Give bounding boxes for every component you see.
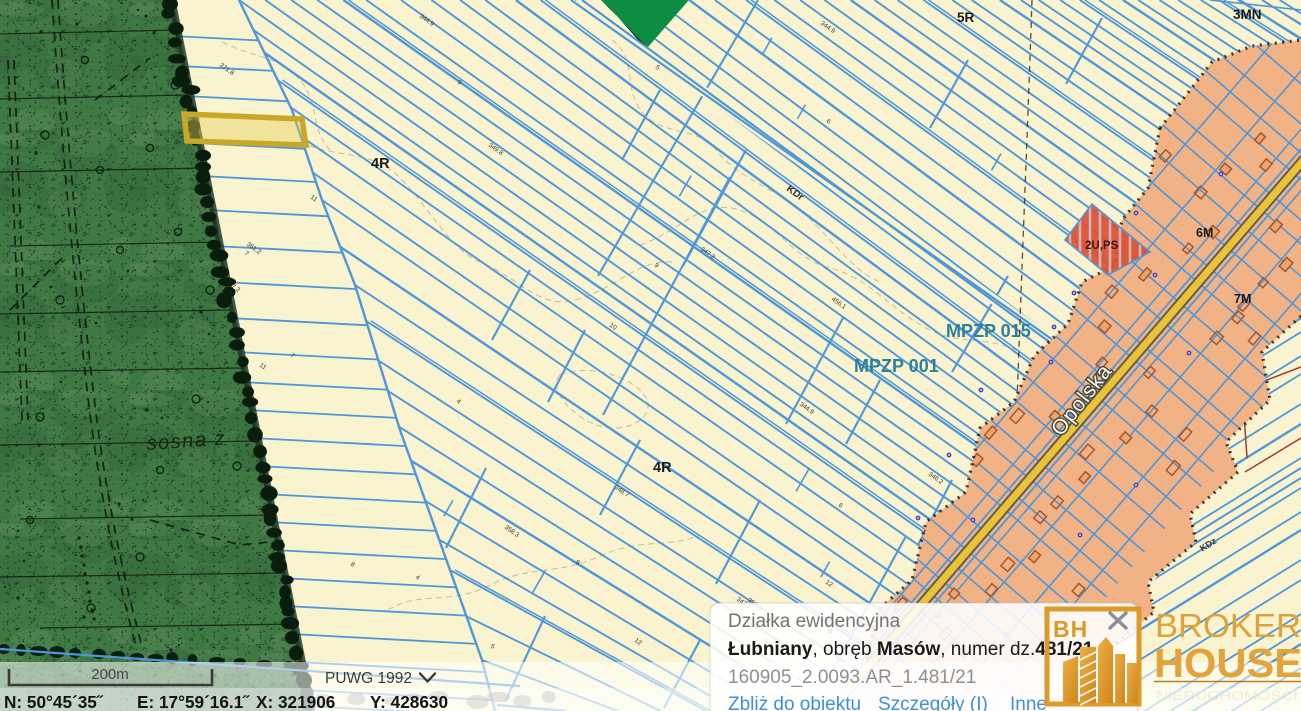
svg-text:N: 50°45´35˝: N: 50°45´35˝ — [4, 692, 104, 711]
svg-text:2U,PS: 2U,PS — [1085, 240, 1119, 252]
svg-text:4R: 4R — [371, 156, 390, 172]
svg-text:MPZP 001: MPZP 001 — [854, 356, 939, 376]
svg-text:Inne: Inne — [1010, 694, 1047, 711]
svg-text:PUWG 1992: PUWG 1992 — [325, 670, 412, 687]
svg-text:BH: BH — [1053, 616, 1088, 642]
svg-text:200m: 200m — [91, 666, 129, 683]
svg-text:5R: 5R — [957, 10, 975, 25]
svg-text:X: 321906: X: 321906 — [256, 692, 335, 711]
svg-text:3MN: 3MN — [1233, 7, 1262, 22]
svg-text:Szczegóły (I): Szczegóły (I) — [878, 694, 988, 711]
svg-text:Zbliż do obiektu: Zbliż do obiektu — [728, 694, 861, 711]
svg-text:Y: 428630: Y: 428630 — [370, 692, 448, 711]
svg-text:4R: 4R — [653, 460, 672, 476]
svg-text:E: 17°59´16.1˝: E: 17°59´16.1˝ — [137, 692, 250, 711]
svg-text:160905_2.0093.AR_1.481/21: 160905_2.0093.AR_1.481/21 — [728, 667, 976, 688]
svg-text:HOUSE: HOUSE — [1154, 640, 1301, 686]
svg-text:BROKER: BROKER — [1155, 607, 1301, 644]
svg-text:6M: 6M — [1196, 226, 1213, 240]
svg-text:NIERUCHOMOŚCI: NIERUCHOMOŚCI — [1156, 688, 1298, 703]
svg-text:MPZP 015: MPZP 015 — [946, 321, 1031, 341]
svg-text:Łubniany, obręb Masów, numer d: Łubniany, obręb Masów, numer dz.481/21 — [728, 639, 1094, 660]
svg-text:Działka ewidencyjna: Działka ewidencyjna — [728, 611, 901, 632]
svg-text:7M: 7M — [1234, 292, 1251, 306]
